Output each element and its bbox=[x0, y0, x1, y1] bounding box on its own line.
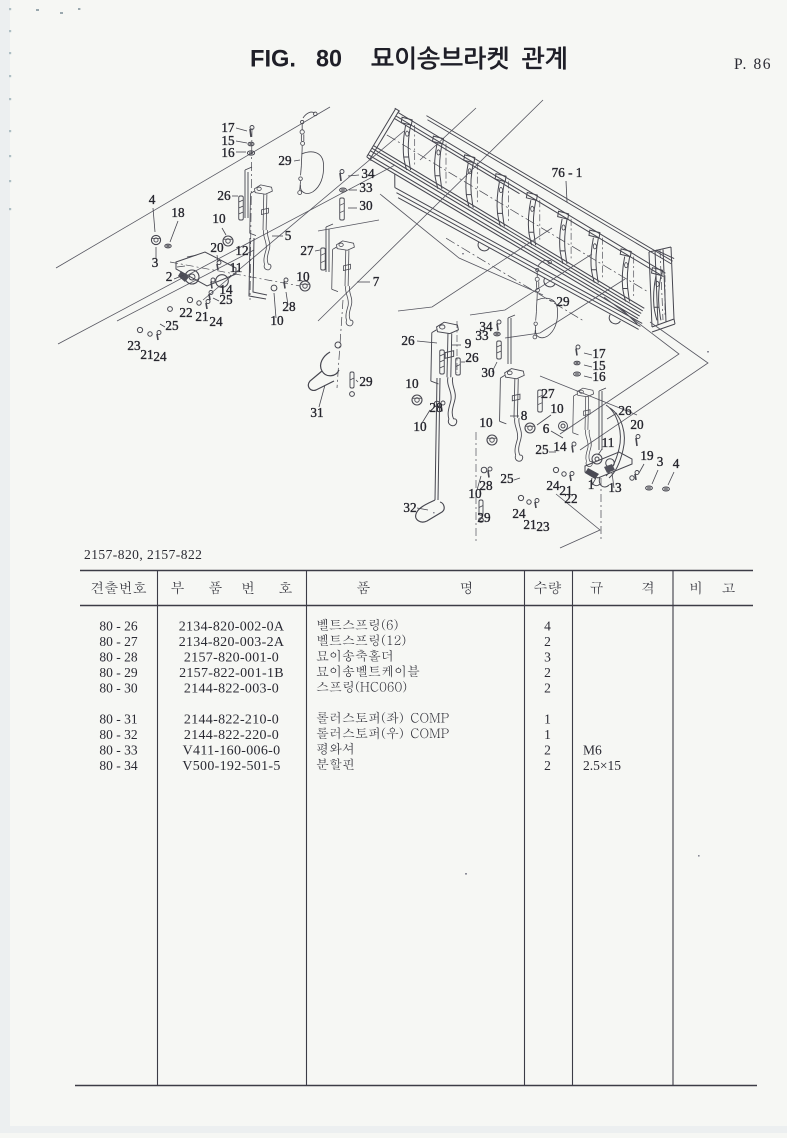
svg-text:6: 6 bbox=[543, 421, 550, 436]
svg-text:80 - 30: 80 - 30 bbox=[99, 681, 137, 696]
svg-text:27: 27 bbox=[541, 386, 555, 401]
svg-text:2144-822-003-0: 2144-822-003-0 bbox=[184, 682, 279, 697]
svg-text:26: 26 bbox=[618, 403, 632, 418]
svg-text:2: 2 bbox=[544, 665, 551, 680]
svg-text:M6: M6 bbox=[583, 743, 602, 758]
svg-text:25: 25 bbox=[165, 318, 179, 333]
svg-text:80 - 29: 80 - 29 bbox=[99, 665, 137, 680]
svg-text:20: 20 bbox=[630, 417, 644, 432]
svg-text:3: 3 bbox=[152, 255, 159, 270]
svg-text:80 - 27: 80 - 27 bbox=[99, 634, 137, 649]
svg-text:1: 1 bbox=[588, 477, 595, 492]
svg-text:80 - 26: 80 - 26 bbox=[99, 619, 137, 634]
svg-text:16: 16 bbox=[221, 145, 235, 160]
svg-text:24: 24 bbox=[209, 314, 223, 329]
svg-text:4: 4 bbox=[149, 192, 156, 207]
svg-text:8: 8 bbox=[521, 408, 528, 423]
svg-text:80 - 32: 80 - 32 bbox=[99, 727, 137, 742]
svg-text:21: 21 bbox=[195, 309, 208, 324]
svg-text:25: 25 bbox=[219, 292, 233, 307]
svg-text:13: 13 bbox=[608, 480, 622, 495]
svg-text:29: 29 bbox=[556, 294, 570, 309]
svg-text:23: 23 bbox=[536, 519, 550, 534]
svg-text:10: 10 bbox=[479, 415, 493, 430]
svg-text:23: 23 bbox=[127, 338, 141, 353]
svg-text:80: 80 bbox=[316, 46, 342, 73]
svg-text:2157-820-001-0: 2157-820-001-0 bbox=[184, 651, 279, 666]
svg-text:29: 29 bbox=[359, 374, 373, 389]
svg-text:2: 2 bbox=[544, 758, 551, 773]
svg-text:11: 11 bbox=[230, 260, 243, 275]
svg-text:33: 33 bbox=[475, 328, 489, 343]
svg-text:1: 1 bbox=[544, 712, 551, 727]
svg-text:2134-820-002-0A: 2134-820-002-0A bbox=[179, 620, 285, 635]
svg-text:5: 5 bbox=[285, 228, 292, 243]
svg-text:V500-192-501-5: V500-192-501-5 bbox=[182, 759, 280, 774]
svg-text:26: 26 bbox=[217, 188, 231, 203]
svg-text:22: 22 bbox=[564, 491, 577, 506]
svg-text:2: 2 bbox=[166, 269, 173, 284]
svg-text:26: 26 bbox=[401, 333, 415, 348]
svg-text:2157-820, 2157-822: 2157-820, 2157-822 bbox=[84, 547, 202, 562]
svg-text:34: 34 bbox=[361, 166, 375, 181]
svg-text:24: 24 bbox=[153, 349, 167, 364]
svg-text:30: 30 bbox=[481, 365, 495, 380]
svg-text:24: 24 bbox=[546, 478, 560, 493]
svg-text:27: 27 bbox=[300, 243, 314, 258]
svg-text:26: 26 bbox=[465, 350, 479, 365]
svg-text:10: 10 bbox=[270, 313, 284, 328]
svg-text:25: 25 bbox=[535, 442, 549, 457]
svg-text:21: 21 bbox=[140, 347, 153, 362]
svg-text:19: 19 bbox=[640, 448, 654, 463]
svg-text:33: 33 bbox=[359, 180, 373, 195]
svg-text:9: 9 bbox=[465, 336, 472, 351]
svg-text:10: 10 bbox=[212, 211, 226, 226]
svg-text:V411-160-006-0: V411-160-006-0 bbox=[183, 744, 281, 759]
svg-text:31: 31 bbox=[310, 405, 323, 420]
svg-text:10: 10 bbox=[413, 419, 427, 434]
svg-text:18: 18 bbox=[171, 205, 185, 220]
svg-text:2134-820-003-2A: 2134-820-003-2A bbox=[179, 635, 285, 650]
svg-text:25: 25 bbox=[500, 471, 514, 486]
svg-text:76 - 1: 76 - 1 bbox=[552, 165, 583, 180]
svg-text:29: 29 bbox=[278, 153, 292, 168]
svg-text:20: 20 bbox=[210, 240, 224, 255]
svg-text:7: 7 bbox=[373, 274, 380, 289]
svg-text:10: 10 bbox=[405, 376, 419, 391]
svg-text:FIG.: FIG. bbox=[250, 46, 296, 73]
svg-text:2: 2 bbox=[544, 681, 551, 696]
svg-text:12: 12 bbox=[235, 243, 248, 258]
svg-text:3: 3 bbox=[657, 454, 664, 469]
svg-text:4: 4 bbox=[673, 456, 680, 471]
svg-text:1: 1 bbox=[544, 727, 551, 742]
svg-text:30: 30 bbox=[359, 198, 373, 213]
svg-text:80 - 33: 80 - 33 bbox=[99, 743, 137, 758]
svg-text:29: 29 bbox=[477, 510, 491, 525]
svg-text:80 - 34: 80 - 34 bbox=[99, 758, 137, 773]
svg-text:2: 2 bbox=[544, 743, 551, 758]
svg-text:2: 2 bbox=[544, 634, 551, 649]
svg-text:21: 21 bbox=[523, 517, 536, 532]
svg-text:32: 32 bbox=[403, 500, 416, 515]
svg-text:2.5×15: 2.5×15 bbox=[583, 758, 621, 773]
svg-text:10: 10 bbox=[550, 401, 564, 416]
svg-text:P. 86: P. 86 bbox=[734, 56, 772, 73]
svg-text:10: 10 bbox=[296, 269, 310, 284]
svg-text:28: 28 bbox=[282, 299, 296, 314]
svg-text:10: 10 bbox=[468, 486, 482, 501]
svg-text:16: 16 bbox=[592, 369, 606, 384]
svg-text:2144-822-210-0: 2144-822-210-0 bbox=[184, 713, 279, 728]
svg-text:80 - 31: 80 - 31 bbox=[99, 712, 137, 727]
svg-text:11: 11 bbox=[602, 435, 615, 450]
svg-text:80 - 28: 80 - 28 bbox=[99, 650, 137, 665]
svg-text:22: 22 bbox=[179, 305, 192, 320]
svg-text:3: 3 bbox=[544, 650, 551, 665]
svg-text:2157-822-001-1B: 2157-822-001-1B bbox=[179, 666, 284, 681]
svg-text:2144-822-220-0: 2144-822-220-0 bbox=[184, 728, 279, 743]
svg-text:4: 4 bbox=[544, 619, 551, 634]
